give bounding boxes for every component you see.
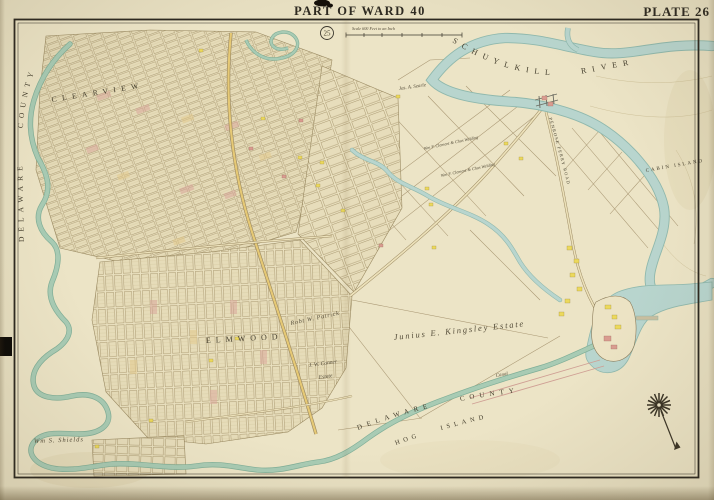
atlas-plate-scan: SCHUYLKILL RIVER DELAWARE COUNTY DELAWAR… <box>0 0 714 500</box>
plate-label: PLATE 26 <box>643 4 710 19</box>
grid-clearview <box>36 30 332 262</box>
scale-note: Scale 600 Feet to an Inch <box>352 26 395 31</box>
page-title: PART OF WARD 40 <box>294 4 426 18</box>
map-canvas: SCHUYLKILL RIVER DELAWARE COUNTY DELAWAR… <box>0 0 714 500</box>
peninsula-land <box>592 296 636 361</box>
adjoining-plate-number: 25 <box>324 30 332 38</box>
edge-tab-mark <box>0 337 12 356</box>
dock <box>636 316 658 320</box>
grid-bottom <box>92 436 186 476</box>
